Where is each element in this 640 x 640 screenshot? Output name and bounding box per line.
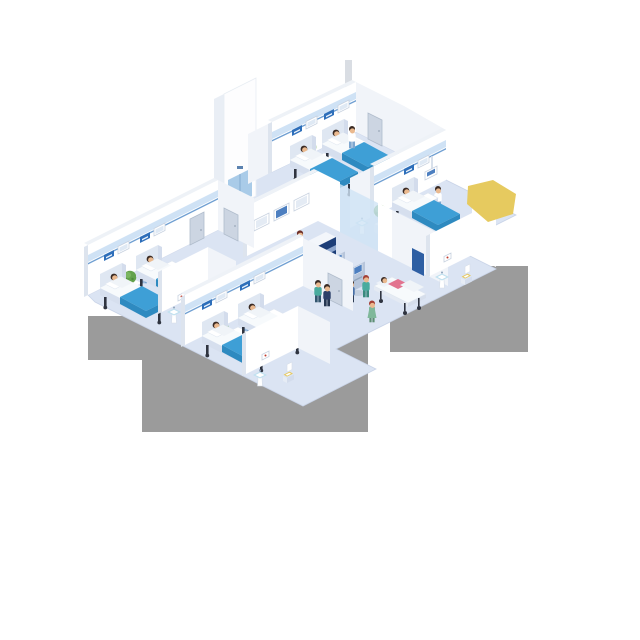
hospital-ward-illustration: P≥M (0, 0, 640, 640)
isometric-scene: P≥M (0, 0, 640, 640)
